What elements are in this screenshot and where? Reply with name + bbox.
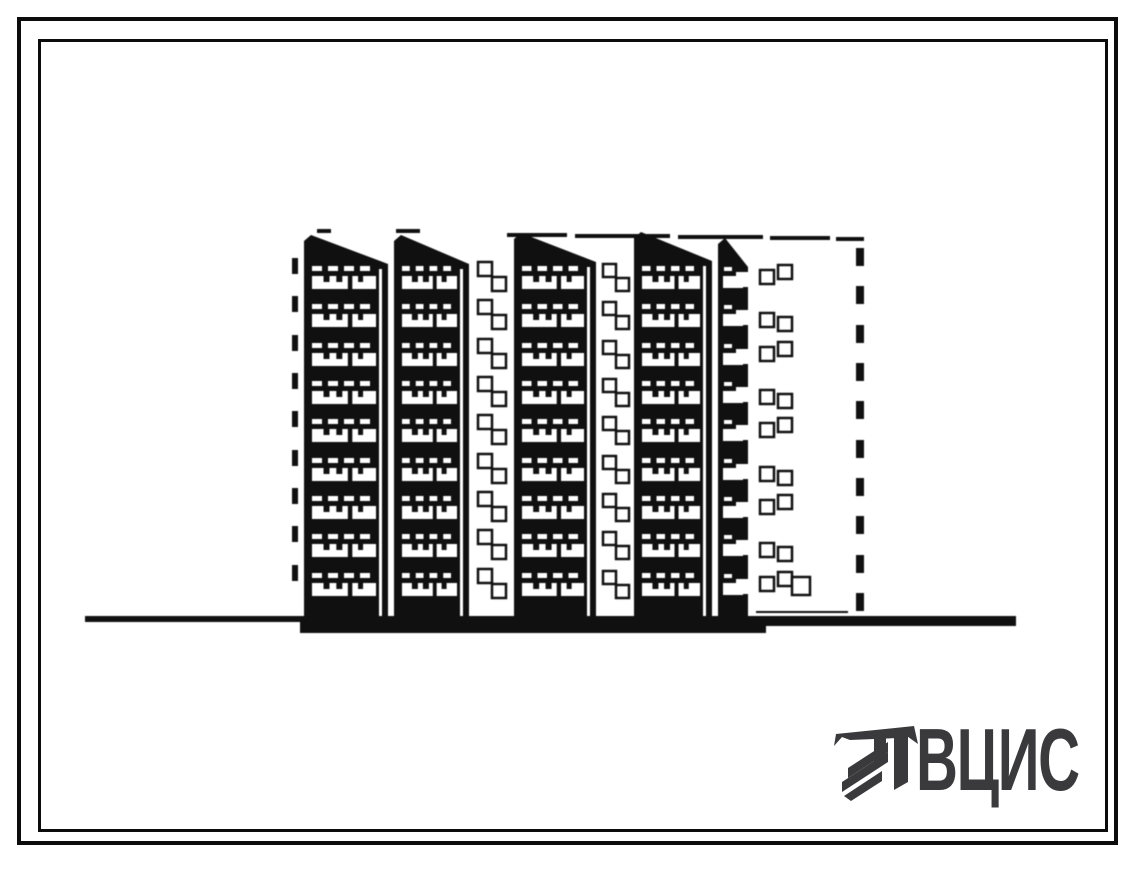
scanned-catalog-page: { "page": { "background": "#ffffff", "in… xyxy=(0,0,1139,869)
vcis-logo: ВЦИС xyxy=(834,722,1094,806)
logo-text: ВЦИС xyxy=(916,718,1079,802)
hatched-column-logo-icon xyxy=(834,726,918,806)
